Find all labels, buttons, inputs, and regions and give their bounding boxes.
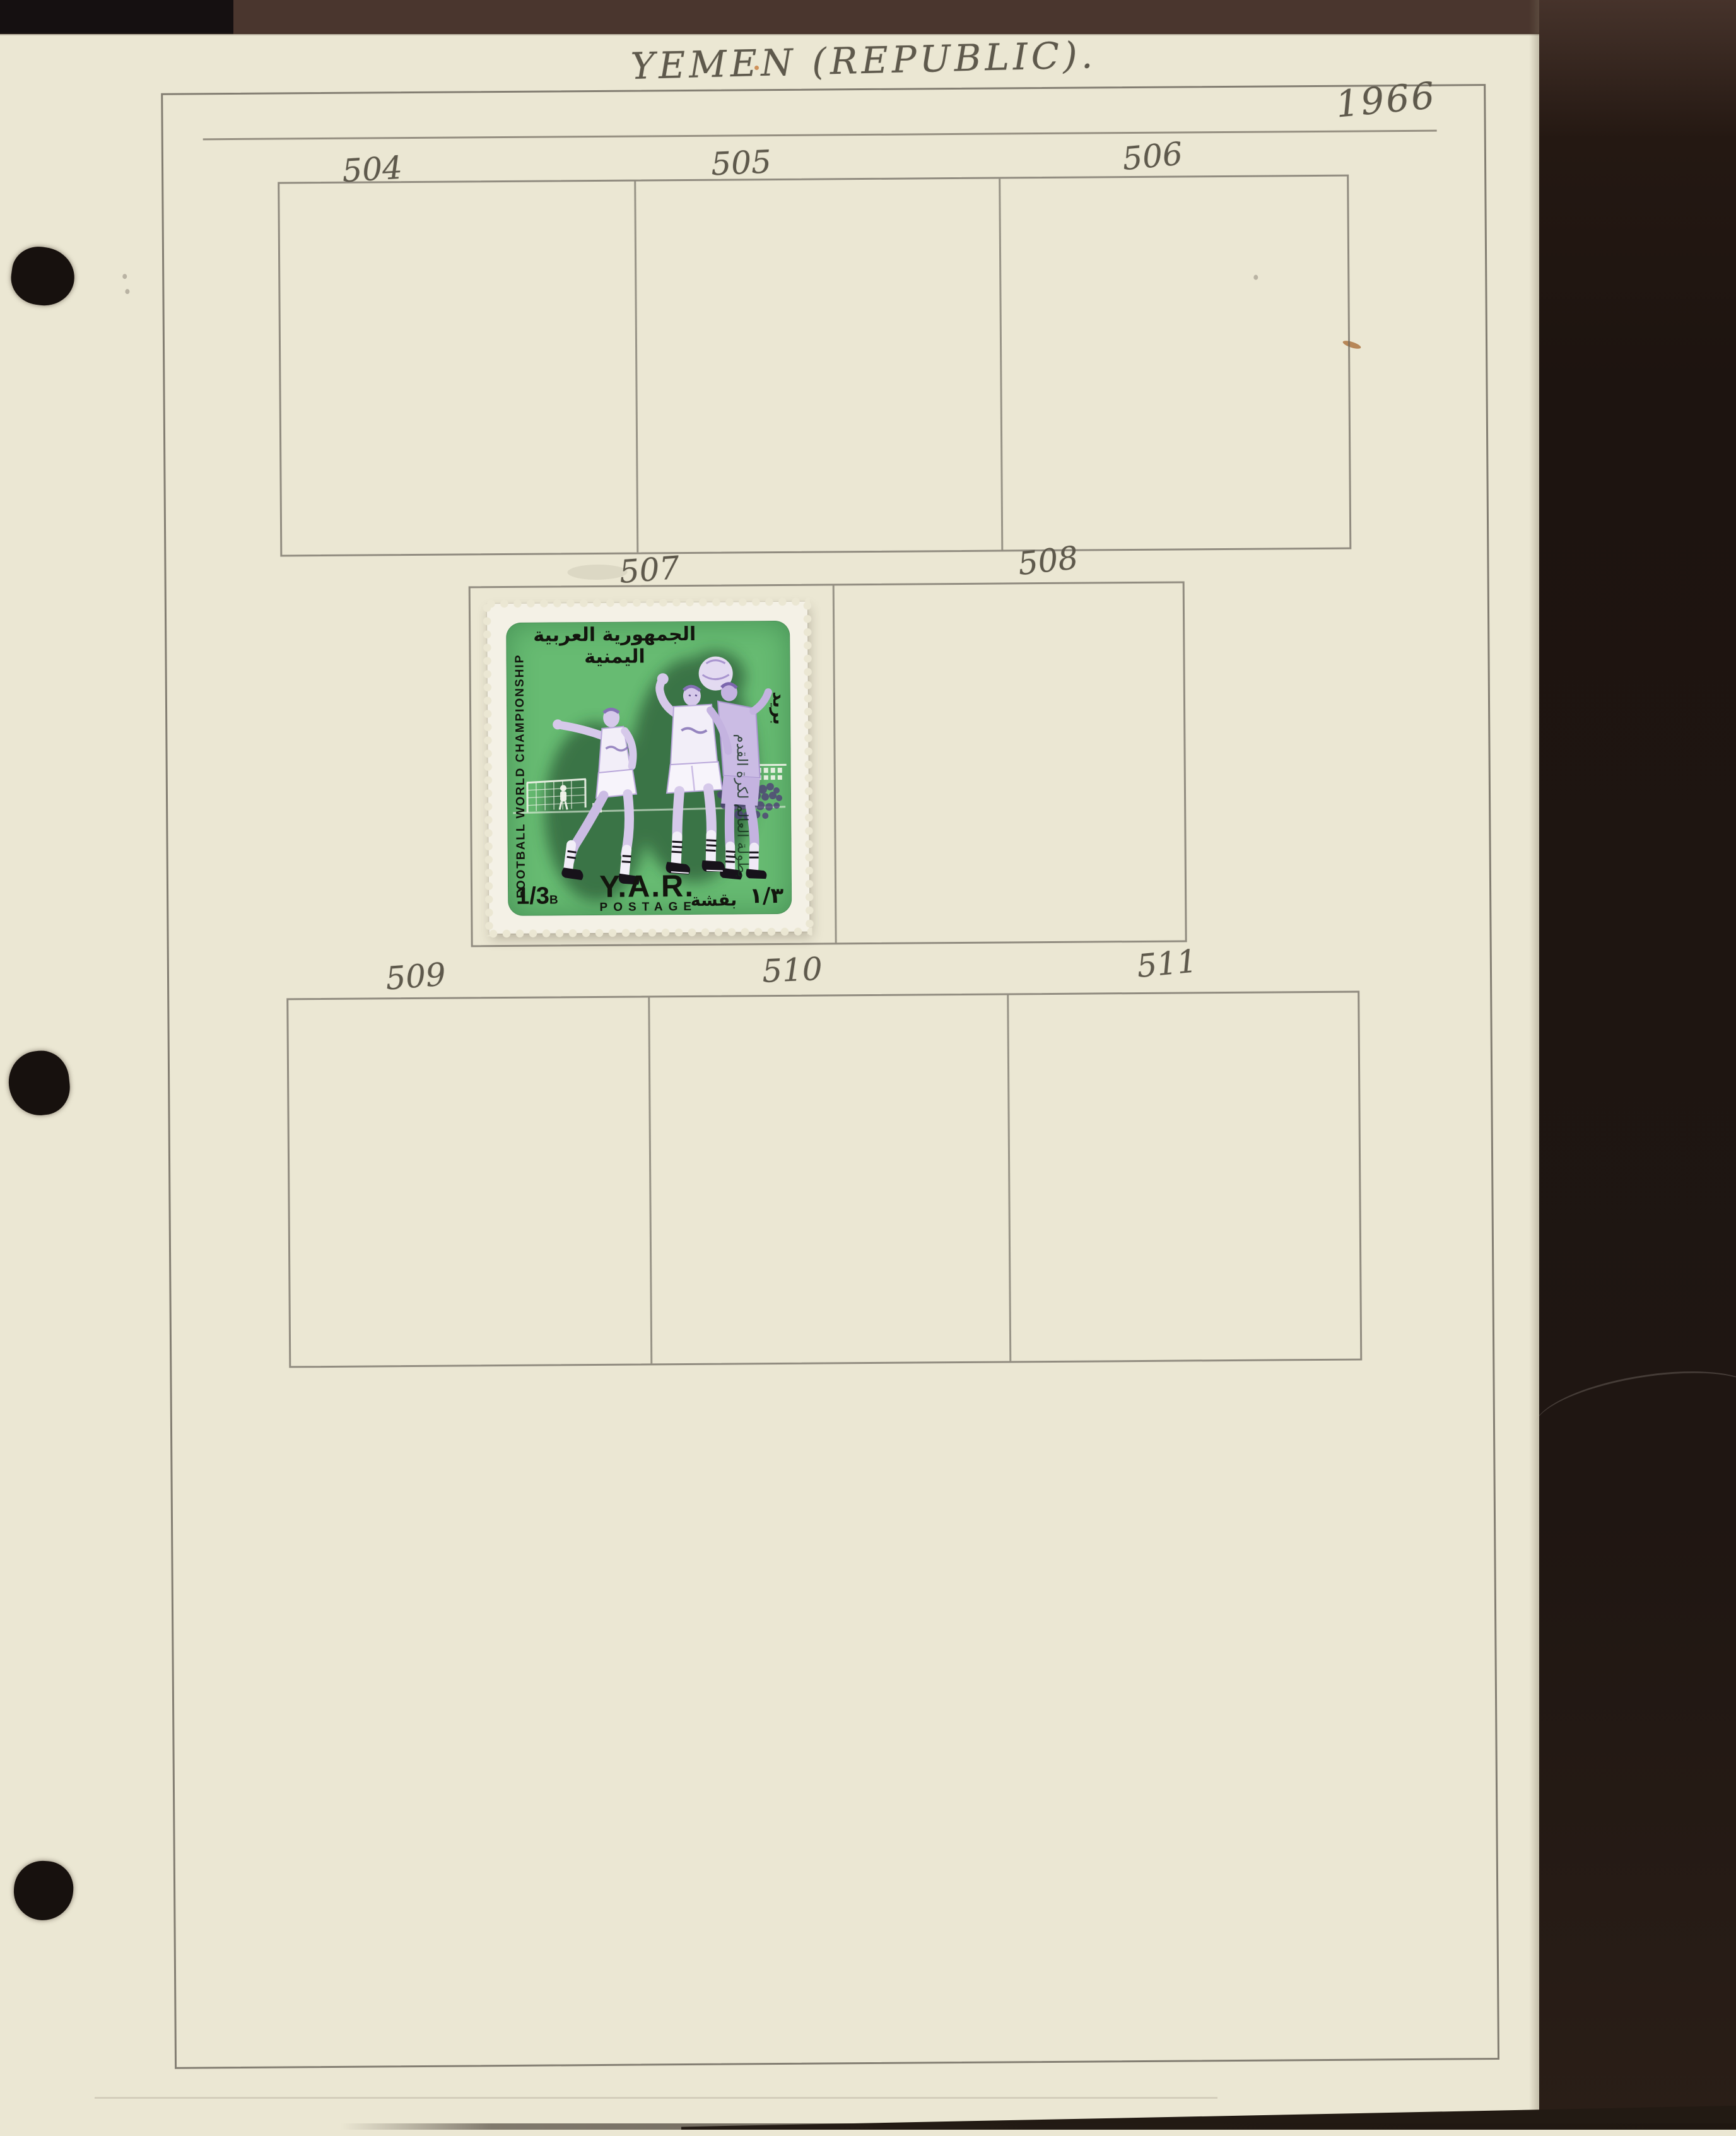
box-divider — [648, 997, 652, 1363]
pencil-dot — [125, 289, 129, 294]
stamp-arabic-country-text: الجمهورية العربية اليمنية — [514, 623, 715, 669]
stamp-design: الجمهورية العربية اليمنية بريد FOOTBALL … — [506, 621, 792, 916]
box-divider — [1007, 995, 1011, 1361]
stamp-box-row-3 — [286, 991, 1362, 1368]
box-number-510: 510 — [738, 949, 847, 990]
stamp-denomination-value: 1/3 — [516, 883, 549, 910]
pencil-dot — [1253, 275, 1258, 280]
stamp-arabic-postage-vertical-text: بريد — [768, 630, 789, 725]
stamp-event-vertical-text: FOOTBALL WORLD CHAMPIONSHIP — [513, 678, 529, 898]
stamp-perforation-left — [483, 601, 494, 936]
stamp-perforation-top — [484, 597, 810, 609]
album-sheet: YEMEN (REPUBLIC). 1966 504 505 506 507 5… — [0, 0, 1736, 2136]
box-number-504: 504 — [318, 148, 427, 191]
page-title: YEMEN (REPUBLIC). — [585, 32, 1141, 88]
box-number-505: 505 — [687, 143, 795, 184]
stamp-arabic-denomination-value: ١/٣ — [749, 883, 783, 908]
box-divider — [999, 179, 1003, 549]
stamp-denomination: 1/3B — [516, 883, 558, 910]
stamp-box-row-1 — [278, 175, 1351, 557]
pencil-dot — [122, 274, 127, 279]
box-divider — [833, 585, 837, 942]
stamp-arabic-event-vertical-text: بطولة العالم لكرة القدم — [733, 682, 751, 877]
stamp-denomination-unit: B — [549, 893, 558, 907]
stamp-yar-football-1966: الجمهورية العربية اليمنية بريد FOOTBALL … — [487, 602, 810, 934]
scanned-album-page: YEMEN (REPUBLIC). 1966 504 505 506 507 5… — [0, 0, 1736, 2130]
stamp-arabic-denomination-unit: بقشة — [691, 890, 737, 910]
box-divider — [634, 182, 638, 553]
